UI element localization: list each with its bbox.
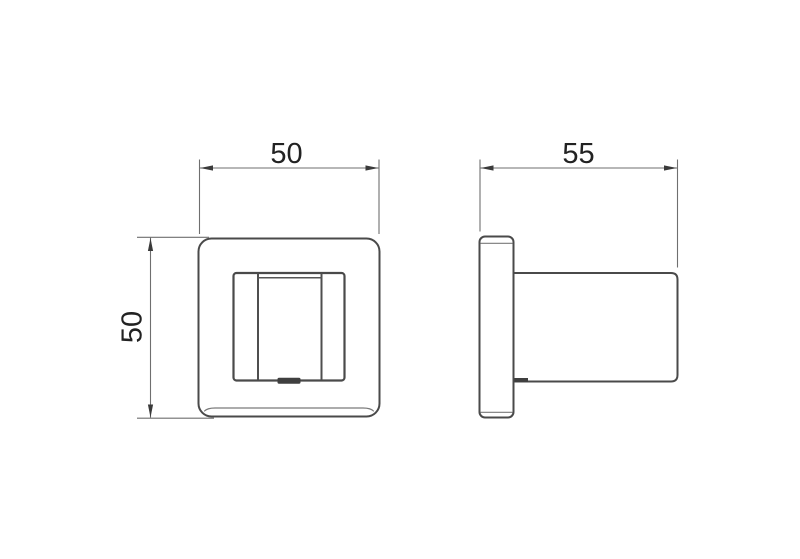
arrowhead-left-icon bbox=[200, 165, 213, 170]
technical-drawing-page: 50 50 55 bbox=[0, 0, 800, 559]
side-arm-outline bbox=[514, 273, 678, 382]
front-height-dim-label: 50 bbox=[117, 311, 149, 343]
front-view bbox=[199, 239, 380, 417]
front-knob-notch bbox=[278, 378, 301, 384]
arrowhead-up-icon bbox=[148, 238, 153, 251]
side-plate-outline bbox=[480, 237, 514, 418]
arrowhead-right-icon bbox=[366, 165, 379, 170]
front-width-dim-label: 50 bbox=[270, 138, 302, 170]
arrowhead-right-icon bbox=[664, 165, 677, 170]
side-depth-dim-label: 55 bbox=[562, 138, 594, 170]
front-knob-outline bbox=[234, 273, 345, 381]
technical-drawing-canvas: 50 50 55 bbox=[0, 0, 800, 559]
arrowhead-left-icon bbox=[481, 165, 494, 170]
side-view bbox=[480, 237, 678, 418]
arrowhead-down-icon bbox=[148, 405, 153, 418]
front-width-dimension: 50 bbox=[200, 138, 380, 234]
